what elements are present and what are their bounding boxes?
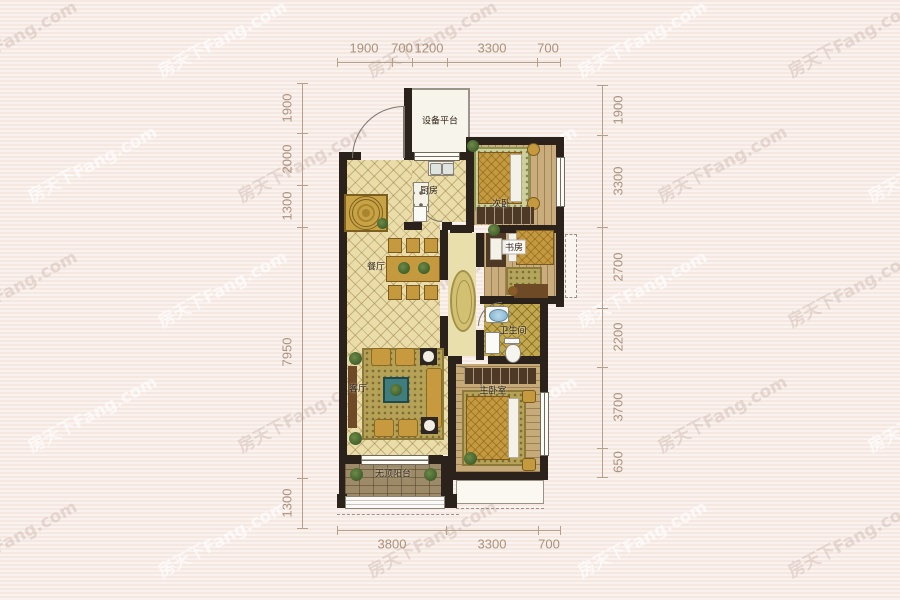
- plant-icon: [350, 468, 363, 481]
- balcony-railing: [345, 496, 445, 509]
- dim-label: 2000: [280, 145, 295, 174]
- kitchen-appliance: [413, 206, 427, 222]
- watermark-text: 房天下Fang.com: [0, 0, 81, 82]
- plant-icon: [349, 432, 362, 445]
- dim-tick: [560, 526, 561, 535]
- sink-basin: [430, 163, 442, 175]
- kitchen-window: [414, 152, 460, 161]
- plant-icon: [398, 262, 410, 274]
- dim-tick: [297, 227, 308, 228]
- plant-icon: [424, 468, 437, 481]
- wall: [404, 152, 414, 160]
- dim-tick: [447, 58, 448, 67]
- watermark-text: 房天下Fang.com: [653, 118, 791, 207]
- side-table-lamp: [421, 417, 438, 434]
- plant-icon: [488, 224, 500, 236]
- dim-label: 2700: [611, 253, 626, 282]
- room-label-dining: 餐厅: [367, 260, 385, 273]
- shower-fixture: [485, 332, 500, 354]
- dim-label: 1300: [280, 192, 295, 221]
- watermark-text: 房天下Fang.com: [153, 243, 291, 332]
- study-cushion: [490, 238, 502, 260]
- sink-basin: [442, 163, 454, 175]
- wall: [556, 145, 564, 157]
- floorplan-page: 房天下Fang.com房天下Fang.com房天下Fang.com房天下Fang…: [0, 0, 900, 600]
- wall: [404, 88, 412, 160]
- desk-chair: [508, 286, 518, 296]
- dim-tick: [597, 477, 608, 478]
- armchair: [398, 419, 418, 437]
- dim-label: 7950: [280, 338, 295, 367]
- side-table-lamp: [420, 348, 437, 365]
- dim-line: [302, 83, 303, 528]
- room-label-bathroom: 卫生间: [499, 324, 526, 337]
- watermark-text: 房天下Fang.com: [783, 0, 900, 82]
- dim-tick: [297, 478, 308, 479]
- wall: [404, 222, 422, 230]
- dim-label: 1900: [280, 94, 295, 123]
- nightstand: [522, 458, 536, 471]
- watermark-text: 房天下Fang.com: [153, 0, 291, 82]
- wall: [556, 207, 564, 307]
- dim-tick: [597, 308, 608, 309]
- dim-label: 3300: [478, 537, 507, 552]
- dim-tick: [597, 227, 608, 228]
- dim-label: 650: [611, 451, 626, 473]
- wall: [540, 296, 548, 364]
- room-label-balcony: 无顶阳台: [375, 467, 411, 480]
- room-label-study: 书房: [502, 240, 526, 255]
- master-wardrobe: [464, 368, 536, 384]
- dining-chair: [406, 238, 420, 253]
- dining-chair: [424, 238, 438, 253]
- dim-tick: [537, 58, 538, 67]
- plant-icon: [467, 140, 479, 152]
- plant-icon: [418, 262, 430, 274]
- nightstand: [522, 390, 536, 403]
- wall: [476, 233, 484, 267]
- dining-chair: [424, 285, 438, 300]
- dim-tick: [597, 135, 608, 136]
- watermark-text: 房天下Fang.com: [863, 368, 900, 457]
- bed-pillows: [508, 398, 519, 458]
- dining-chair: [388, 285, 402, 300]
- dim-label: 3700: [611, 393, 626, 422]
- balcony-sliding-door: [361, 455, 429, 465]
- watermark-text: 房天下Fang.com: [153, 493, 291, 582]
- wall: [466, 145, 474, 232]
- master-bay-window: [456, 480, 544, 504]
- master-bed: [466, 396, 510, 460]
- plant-icon: [349, 352, 362, 365]
- watermark-text: 房天下Fang.com: [783, 243, 900, 332]
- watermark-text: 房天下Fang.com: [783, 493, 900, 582]
- dim-label: 2200: [611, 323, 626, 352]
- wall: [442, 222, 452, 230]
- dim-line: [602, 85, 603, 477]
- bay-dashed-line: [456, 508, 544, 509]
- toilet: [505, 344, 521, 363]
- dim-label: 3800: [378, 537, 407, 552]
- study-bay-window: [565, 234, 577, 298]
- dim-tick: [392, 58, 393, 67]
- entry-door-leaf: [403, 106, 405, 158]
- wall: [476, 330, 484, 360]
- wall: [448, 472, 548, 480]
- watermark-text: 房天下Fang.com: [573, 0, 711, 82]
- dim-tick: [297, 133, 308, 134]
- dim-tick: [597, 367, 608, 368]
- plant-icon: [464, 452, 477, 465]
- dining-chair: [388, 238, 402, 253]
- room-label-equipment-platform: 设备平台: [422, 114, 458, 127]
- bathroom-basin: [489, 309, 508, 322]
- room-label-living: 客厅: [349, 382, 367, 395]
- watermark-text: 房天下Fang.com: [0, 243, 81, 332]
- dim-tick: [597, 85, 608, 86]
- armchair: [374, 419, 394, 437]
- dim-tick: [297, 185, 308, 186]
- dim-tick: [297, 528, 308, 529]
- dim-label: 1900: [350, 41, 379, 56]
- dim-line: [337, 530, 560, 531]
- dim-tick: [412, 58, 413, 67]
- dim-tick: [337, 526, 338, 535]
- dim-label: 1900: [611, 96, 626, 125]
- room-label-master-bedroom: 主卧室: [479, 384, 506, 397]
- dim-tick: [337, 58, 338, 67]
- watermark-text: 房天下Fang.com: [23, 118, 161, 207]
- dim-label: 700: [391, 41, 413, 56]
- dim-label: 700: [537, 41, 559, 56]
- dim-tick: [597, 448, 608, 449]
- bedroom2-wardrobe: [476, 207, 534, 224]
- dim-label: 3300: [611, 167, 626, 196]
- watermark-text: 房天下Fang.com: [0, 493, 81, 582]
- bed-pillows: [510, 154, 522, 202]
- dim-line: [337, 62, 560, 63]
- wall: [466, 137, 564, 145]
- bedroom2-window: [556, 157, 565, 207]
- balcony-dashed-line: [337, 514, 459, 515]
- nightstand: [527, 143, 540, 156]
- watermark-text: 房天下Fang.com: [573, 493, 711, 582]
- plant-icon: [390, 384, 402, 396]
- dim-tick: [538, 526, 539, 535]
- study-desk: [514, 284, 548, 298]
- watermark-text: 房天下Fang.com: [23, 368, 161, 457]
- dim-label: 700: [538, 537, 560, 552]
- dim-tick: [446, 526, 447, 535]
- dim-label: 1300: [280, 489, 295, 518]
- wall: [540, 364, 548, 392]
- dining-table: [386, 256, 440, 282]
- dim-label: 1200: [415, 41, 444, 56]
- watermark-text: 房天下Fang.com: [653, 368, 791, 457]
- tv-cabinet: [348, 366, 357, 428]
- armchair: [395, 348, 415, 366]
- corridor-rug: [450, 270, 476, 332]
- dining-chair: [406, 285, 420, 300]
- plant-icon: [377, 218, 388, 229]
- armchair: [371, 348, 391, 366]
- dim-tick: [560, 58, 561, 67]
- wall: [450, 225, 472, 233]
- wall: [445, 494, 457, 508]
- master-window: [540, 392, 549, 456]
- dim-label: 3300: [478, 41, 507, 56]
- room-label-kitchen: 厨房: [420, 184, 438, 197]
- watermark-text: 房天下Fang.com: [863, 118, 900, 207]
- dim-tick: [297, 83, 308, 84]
- wall: [440, 230, 448, 280]
- watermark-text: 房天下Fang.com: [573, 243, 711, 332]
- room-label-bedroom2: 次卧: [492, 197, 510, 210]
